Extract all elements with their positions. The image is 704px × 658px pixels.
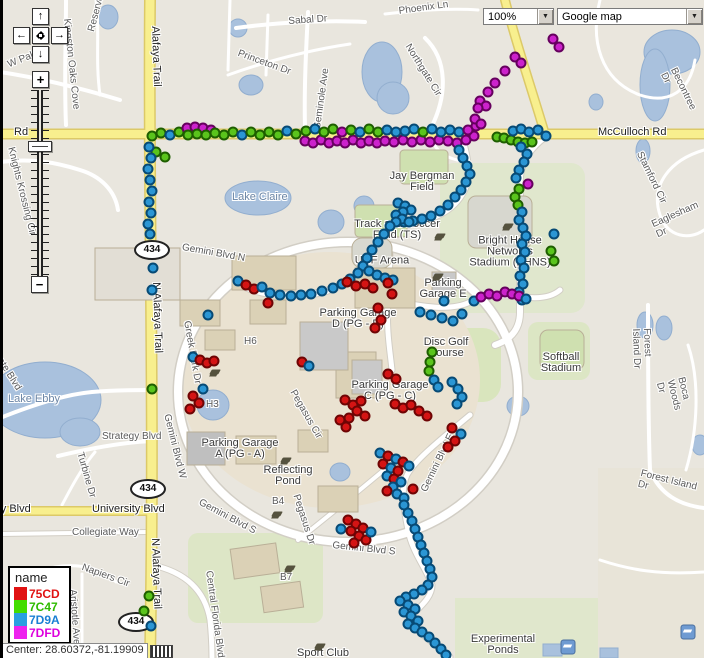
legend-swatch <box>14 613 27 626</box>
map-application-window: Sabal DrPhoenix LnPrinceton DrSeminole A… <box>0 0 704 658</box>
gps-data-point <box>145 229 156 240</box>
gps-data-point <box>521 294 532 305</box>
zoom-slider-handle[interactable] <box>28 141 52 152</box>
map-label: Lake Ebby <box>8 394 60 405</box>
legend-title: name <box>15 570 66 585</box>
gps-data-point <box>368 283 379 294</box>
map-label: University Blvd <box>92 504 165 515</box>
map-label: Lake Claire <box>232 192 288 203</box>
gps-data-point <box>145 175 156 186</box>
gps-data-point <box>160 152 171 163</box>
gps-data-point <box>476 119 487 130</box>
map-center-status: Center: 28.60372,-81.19909 <box>2 643 148 658</box>
gps-data-point <box>383 278 394 289</box>
legend-label: 7DFD <box>29 626 60 640</box>
gps-data-point <box>441 650 452 658</box>
map-label: H6 <box>244 336 257 347</box>
gps-data-point <box>263 298 274 309</box>
gps-data-point <box>433 382 444 393</box>
gps-data-point <box>146 621 157 632</box>
legend-item: 7C47 <box>14 600 66 613</box>
pan-right-button[interactable]: → <box>51 27 68 44</box>
gps-data-point <box>317 286 328 297</box>
gps-data-point <box>146 153 157 164</box>
map-label: Reflecting Pond <box>264 465 313 487</box>
gps-data-point <box>541 131 552 142</box>
map-label: Alafaya Trail <box>149 26 162 87</box>
route-shield: 434 <box>130 479 166 499</box>
gps-data-point <box>408 484 419 495</box>
pan-up-button[interactable]: ↑ <box>32 8 49 25</box>
map-label: University Blvd <box>0 504 31 515</box>
map-label: Softball Stadium <box>541 352 581 374</box>
map-label: Experimental Ponds <box>471 634 535 656</box>
gps-data-point <box>549 229 560 240</box>
legend-label: 7D9A <box>29 613 60 627</box>
map-label: Forest Island Dr <box>630 328 654 381</box>
gps-data-point <box>554 42 565 53</box>
gps-data-point <box>306 289 317 300</box>
legend-label: 7C47 <box>29 600 58 614</box>
gps-data-point <box>511 173 522 184</box>
chevron-down-icon[interactable]: ▼ <box>686 9 702 24</box>
pan-left-button[interactable]: ← <box>13 27 30 44</box>
gps-data-point <box>549 256 560 267</box>
gps-data-point <box>415 307 426 318</box>
gps-data-point <box>341 422 352 433</box>
left-border <box>0 0 3 658</box>
gps-data-point <box>391 374 402 385</box>
route-shield: 434 <box>134 240 170 260</box>
gps-data-point <box>527 137 538 148</box>
gps-data-point <box>286 291 297 302</box>
pan-center-button[interactable] <box>32 27 49 44</box>
map-label: B7 <box>280 572 292 583</box>
legend: name 75CD7C477D9A7DFD <box>8 566 71 644</box>
gps-data-point <box>148 263 159 274</box>
gps-data-point <box>516 58 527 69</box>
gps-data-point <box>373 303 384 314</box>
gps-data-point <box>366 527 377 538</box>
gps-data-point <box>257 282 268 293</box>
chevron-down-icon[interactable]: ▼ <box>537 9 553 24</box>
map-type-dropdown[interactable]: Google map ▼ <box>557 8 703 25</box>
map-label: B4 <box>272 496 284 507</box>
gps-data-point <box>304 361 315 372</box>
map-label: Rd <box>14 127 28 138</box>
gps-data-point <box>500 66 511 77</box>
gps-data-point <box>370 323 381 334</box>
zoom-slider-track[interactable] <box>31 90 49 276</box>
gps-data-point <box>443 442 454 453</box>
gps-data-point <box>198 384 209 395</box>
gps-data-point <box>209 356 220 367</box>
map-label: Sport Club <box>297 648 349 658</box>
gps-data-point <box>404 217 415 228</box>
gps-data-point <box>457 309 468 320</box>
university-icon <box>561 640 576 655</box>
gps-data-point <box>147 186 158 197</box>
gps-data-point <box>349 538 360 549</box>
legend-swatch <box>14 600 27 613</box>
gps-data-point <box>144 591 155 602</box>
map-label: H3 <box>206 399 219 410</box>
pan-down-button[interactable]: ↓ <box>32 46 49 63</box>
gps-data-point <box>483 87 494 98</box>
gps-data-point <box>404 461 415 472</box>
pan-center-icon <box>33 28 48 43</box>
legend-item: 7D9A <box>14 613 66 626</box>
gps-data-point <box>296 290 307 301</box>
map-label: Parking Garage A (PG - A) <box>201 438 278 460</box>
gps-data-point <box>422 411 433 422</box>
gps-data-point <box>360 411 371 422</box>
zoom-out-button[interactable]: − <box>31 276 48 293</box>
legend-label: 75CD <box>29 587 60 601</box>
gps-data-point <box>452 399 463 410</box>
gps-data-point <box>203 310 214 321</box>
map-type-value: Google map <box>562 11 685 23</box>
legend-swatch <box>14 587 27 600</box>
gps-data-point <box>426 310 437 321</box>
gps-data-point <box>275 290 286 301</box>
legend-item: 75CD <box>14 587 66 600</box>
map-label: Bright House Networks Stadium (BHNS) <box>469 236 550 269</box>
gps-data-point <box>147 285 158 296</box>
gps-data-point <box>139 606 150 617</box>
map-label: Collegiate Way <box>72 527 139 538</box>
zoom-level-dropdown[interactable]: 100% ▼ <box>483 8 554 25</box>
gps-data-point <box>387 289 398 300</box>
gps-data-point <box>144 142 155 153</box>
gps-data-point <box>147 384 158 395</box>
gps-data-point <box>473 103 484 114</box>
gps-data-point <box>185 404 196 415</box>
map-label: Jay Bergman Field <box>390 171 455 193</box>
scale-widget <box>150 645 173 658</box>
map-label: McCulloch Rd <box>598 127 666 138</box>
gps-data-point <box>143 164 154 175</box>
university-icon <box>681 625 696 640</box>
legend-item: 7DFD <box>14 626 66 639</box>
gps-data-point <box>439 296 450 307</box>
zoom-in-button[interactable]: + <box>32 71 49 88</box>
gps-data-point <box>437 313 448 324</box>
gps-data-point <box>144 197 155 208</box>
gps-data-point <box>146 208 157 219</box>
zoom-level-value: 100% <box>488 11 536 23</box>
legend-swatch <box>14 626 27 639</box>
map-label: Strategy Blvd <box>102 431 161 442</box>
gps-data-point <box>328 283 339 294</box>
